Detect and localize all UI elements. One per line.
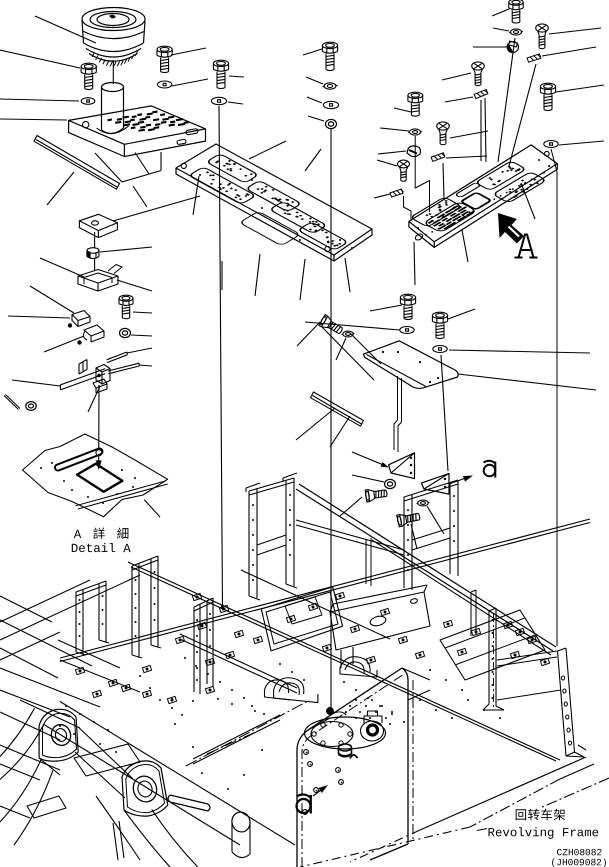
svg-text:回转车架: 回转车架: [515, 808, 567, 823]
svg-text:Detail A: Detail A: [71, 542, 132, 556]
svg-text:Revolving Frame: Revolving Frame: [488, 826, 600, 840]
svg-text:A 詳 細: A 詳 細: [74, 527, 132, 542]
svg-text:(JH009082): (JH009082): [551, 857, 608, 867]
